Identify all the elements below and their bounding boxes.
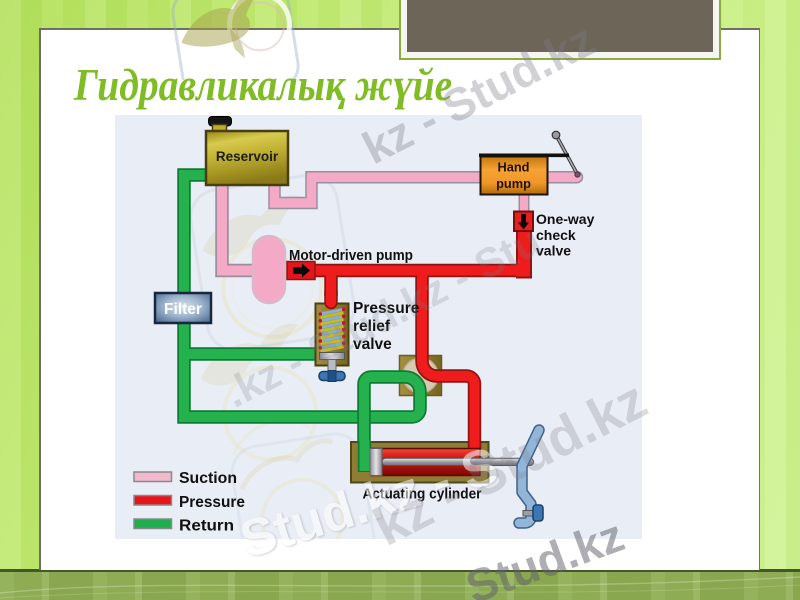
svg-text:Reservoir: Reservoir — [216, 149, 279, 164]
svg-text:Hand: Hand — [498, 159, 530, 174]
svg-text:Filter: Filter — [164, 301, 202, 318]
svg-text:Suction: Suction — [179, 470, 237, 487]
svg-text:Motor-driven pump: Motor-driven pump — [289, 248, 413, 264]
svg-text:check: check — [536, 226, 576, 242]
svg-text:pump: pump — [496, 176, 531, 191]
svg-text:One-way: One-way — [536, 211, 595, 227]
svg-text:Pressure: Pressure — [179, 494, 245, 511]
svg-text:Return: Return — [179, 517, 234, 534]
